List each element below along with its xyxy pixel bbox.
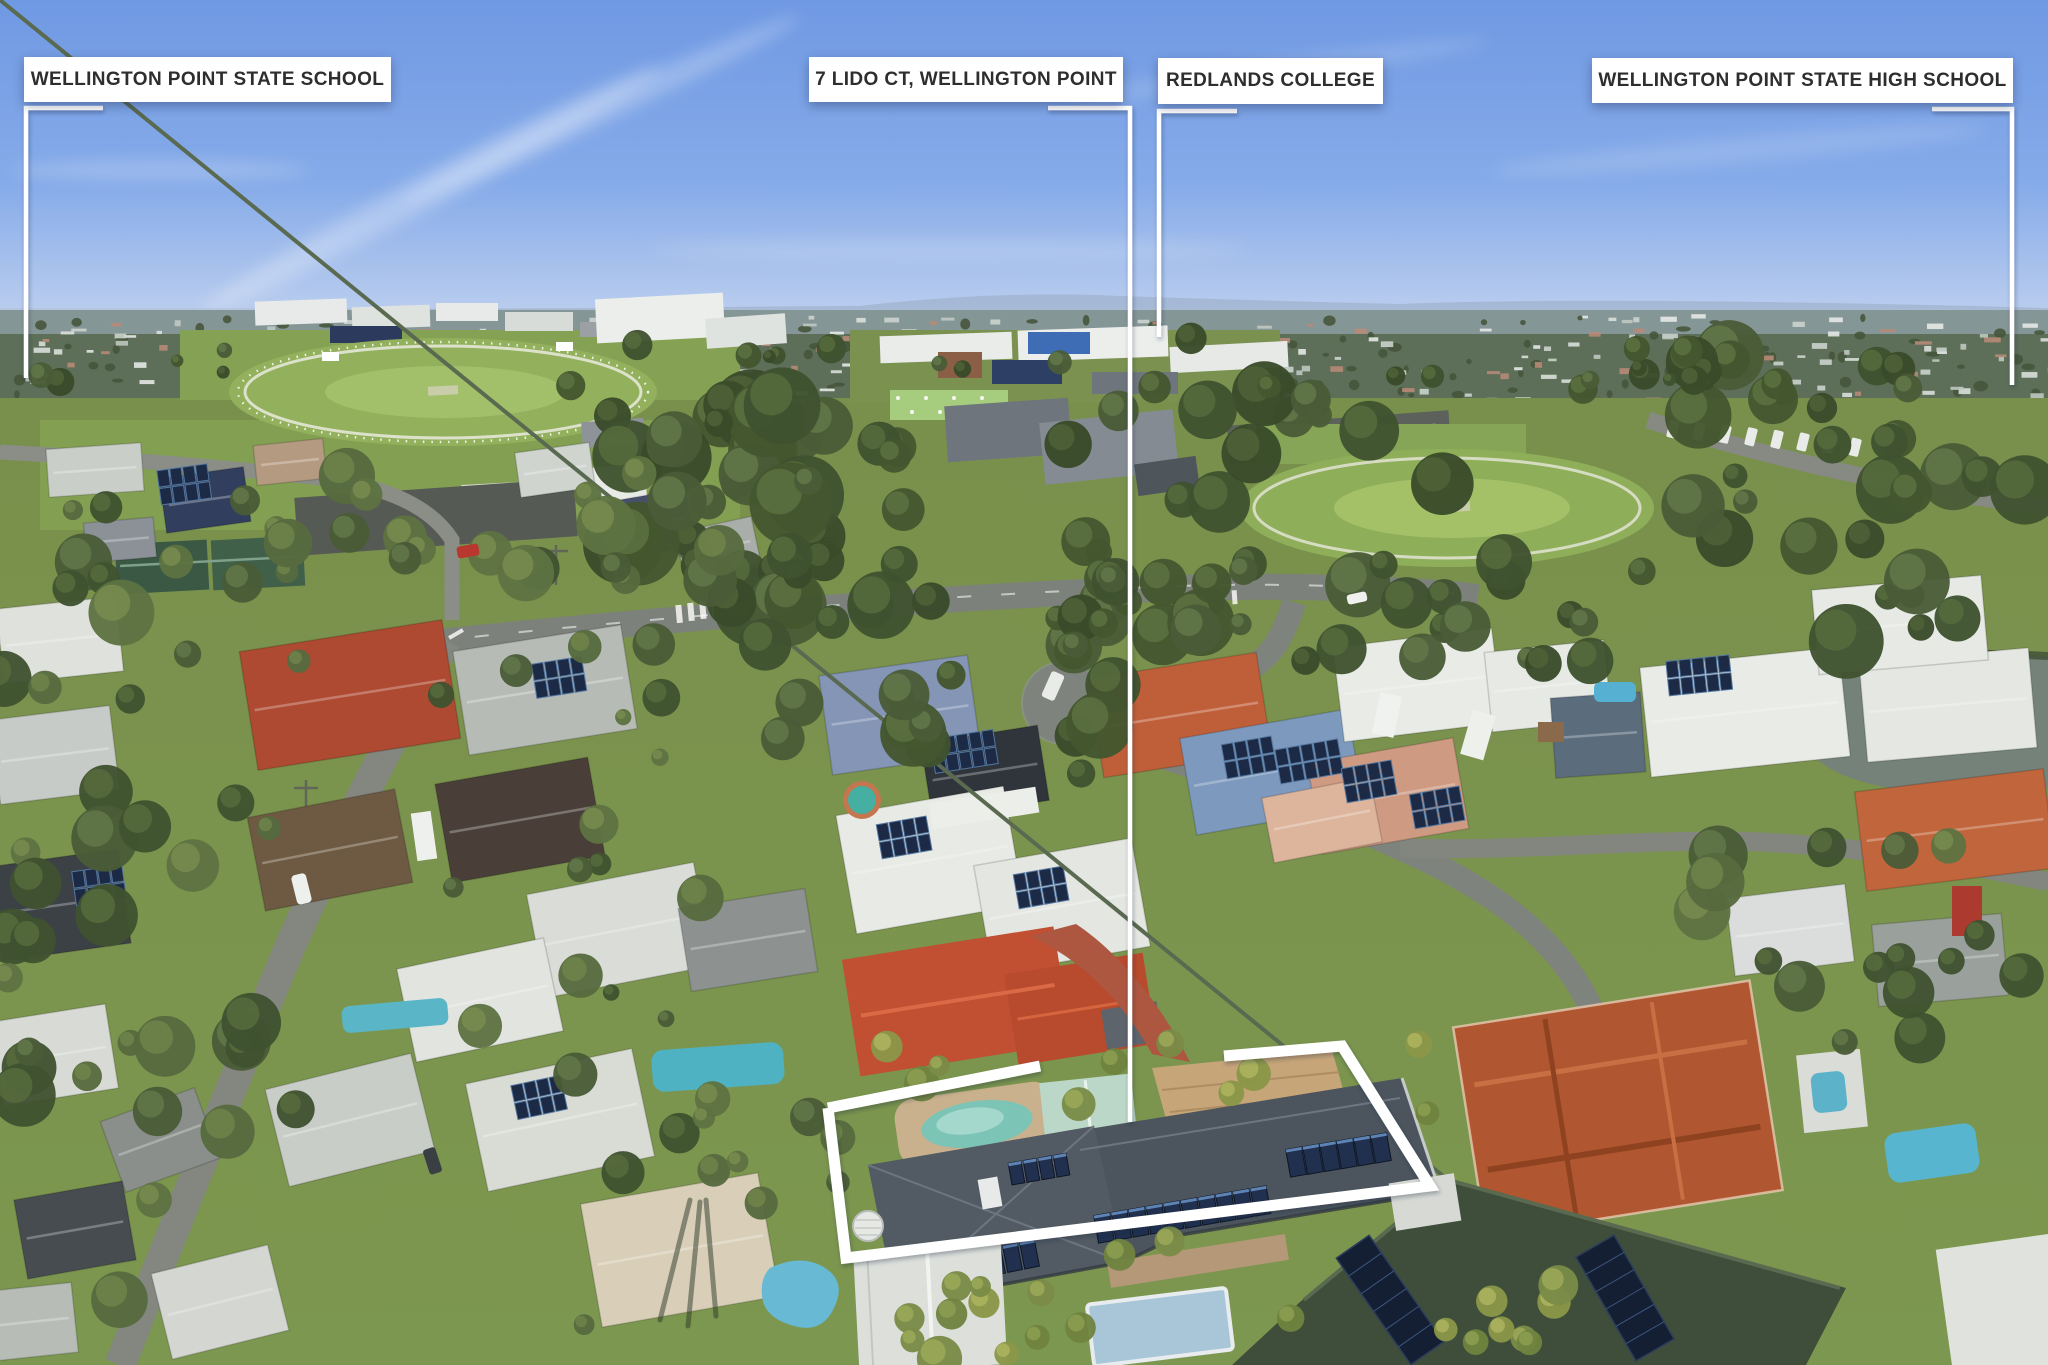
label-text: WELLINGTON POINT STATE SCHOOL [31, 69, 385, 91]
label-text: 7 LIDO CT, WELLINGTON POINT [815, 69, 1117, 91]
label-wellington-point-state-school: WELLINGTON POINT STATE SCHOOL [24, 57, 391, 102]
leader-line-high-school [1932, 109, 2012, 385]
aerial-photo: WELLINGTON POINT STATE SCHOOL 7 LIDO CT,… [0, 0, 2048, 1365]
label-property-address: 7 LIDO CT, WELLINGTON POINT [809, 57, 1123, 102]
label-text: WELLINGTON POINT STATE HIGH SCHOOL [1598, 70, 2006, 92]
label-text: REDLANDS COLLEGE [1166, 70, 1375, 92]
leader-line-property [1048, 108, 1130, 1122]
label-redlands-college: REDLANDS COLLEGE [1158, 58, 1383, 104]
leader-line-state-school [26, 108, 103, 378]
annotation-overlay [0, 0, 2048, 1365]
label-wellington-point-state-high-school: WELLINGTON POINT STATE HIGH SCHOOL [1592, 58, 2013, 103]
leader-line-redlands-college [1159, 111, 1237, 337]
